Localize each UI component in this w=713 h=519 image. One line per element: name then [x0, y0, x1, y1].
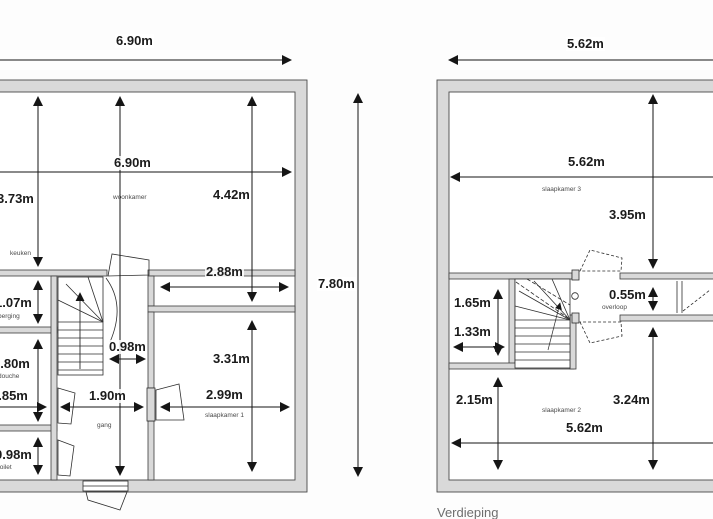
room-label-overloop: overloop: [602, 304, 627, 311]
room-label-slaapkamer2: slaapkamer 2: [542, 407, 581, 414]
dim-woonkamer-height: 4.42m: [212, 188, 251, 202]
floorplan-page: 6.90m 6.90m 3.73m 4.42m 2.88m 7.80m 1.07…: [0, 0, 713, 519]
dim-douche-height: 1.80m: [0, 357, 31, 371]
dim-overloop-height: 0.55m: [608, 288, 647, 302]
dim-corridor-width: 2.88m: [205, 265, 244, 279]
dim-closet-height: 1.65m: [453, 296, 492, 310]
dim-slaapkamer1-height: 3.31m: [212, 352, 251, 366]
floorplan-drawing: [0, 0, 713, 519]
dim-right-left-height: 2.15m: [455, 393, 494, 407]
dim-total-height: 7.80m: [317, 277, 356, 291]
floor-caption: Verdieping: [437, 505, 498, 519]
room-label-berging: berging: [0, 313, 20, 320]
dim-right-top-height: 3.95m: [608, 208, 647, 222]
dim-closet-width: 1.33m: [453, 325, 492, 339]
dim-slaapkamer2-height: 3.24m: [612, 393, 651, 407]
dim-keuken-height: 3.73m: [0, 192, 35, 206]
dim-toilet-height: 0.98m: [0, 448, 33, 462]
room-label-keuken: keuken: [10, 250, 31, 257]
dim-right-inner-width: 5.62m: [567, 155, 606, 169]
dim-berging-height: 1.07m: [0, 296, 33, 310]
dim-left-inner-width: 6.90m: [113, 156, 152, 170]
dim-slaapkamer1-width: 2.99m: [205, 388, 244, 402]
room-label-woonkamer: woonkamer: [113, 194, 147, 201]
dim-left-top-width: 6.90m: [115, 34, 154, 48]
room-label-gang: gang: [97, 422, 111, 429]
room-label-slaapkamer1: slaapkamer 1: [205, 412, 244, 419]
dim-right-top-width: 5.62m: [566, 37, 605, 51]
left-plan: [0, 60, 358, 510]
dim-stair-gap-width: 0.98m: [108, 340, 147, 354]
room-label-toilet: toilet: [0, 464, 12, 471]
dim-right-bottom-width: 5.62m: [565, 421, 604, 435]
room-label-slaapkamer3: slaapkamer 3: [542, 186, 581, 193]
dim-gang-width: 1.90m: [88, 389, 127, 403]
dim-douche-width: 1.85m: [0, 389, 29, 403]
right-plan-stairs: [515, 279, 578, 368]
room-label-douche: douche: [0, 373, 19, 380]
